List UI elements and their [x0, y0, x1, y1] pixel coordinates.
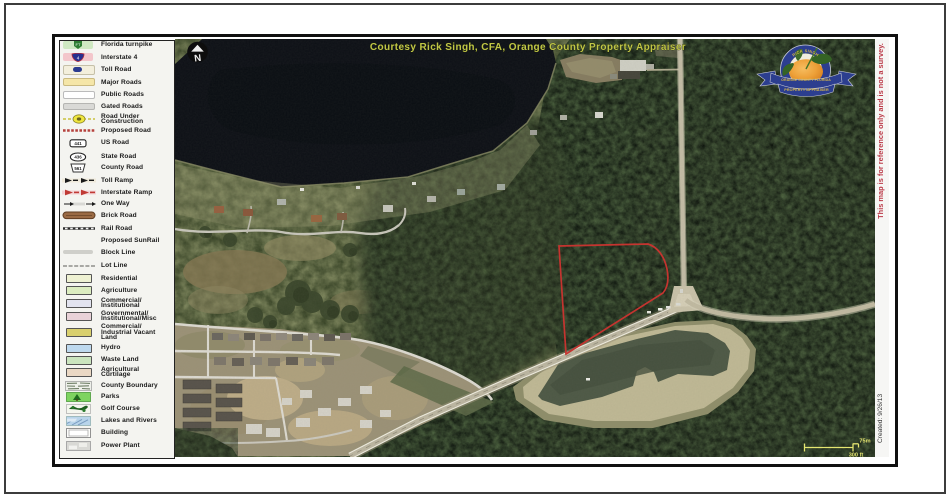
- svg-text:561: 561: [74, 166, 82, 171]
- svg-text:FT: FT: [76, 42, 81, 47]
- svg-text:4: 4: [77, 56, 80, 61]
- svg-text:441: 441: [74, 141, 82, 146]
- svg-text:436: 436: [74, 154, 82, 159]
- svg-text:N: N: [194, 53, 202, 65]
- svg-text:ORANGE COUNTY FLORIDA: ORANGE COUNTY FLORIDA: [781, 78, 831, 82]
- svg-text:Courtesy Rick Singh, CFA, Oran: Courtesy Rick Singh, CFA, Orange County …: [370, 42, 686, 53]
- svg-text:300 ft: 300 ft: [849, 453, 864, 458]
- svg-text:PROPERTY APPRAISER: PROPERTY APPRAISER: [784, 88, 829, 92]
- svg-text:75m: 75m: [859, 439, 870, 445]
